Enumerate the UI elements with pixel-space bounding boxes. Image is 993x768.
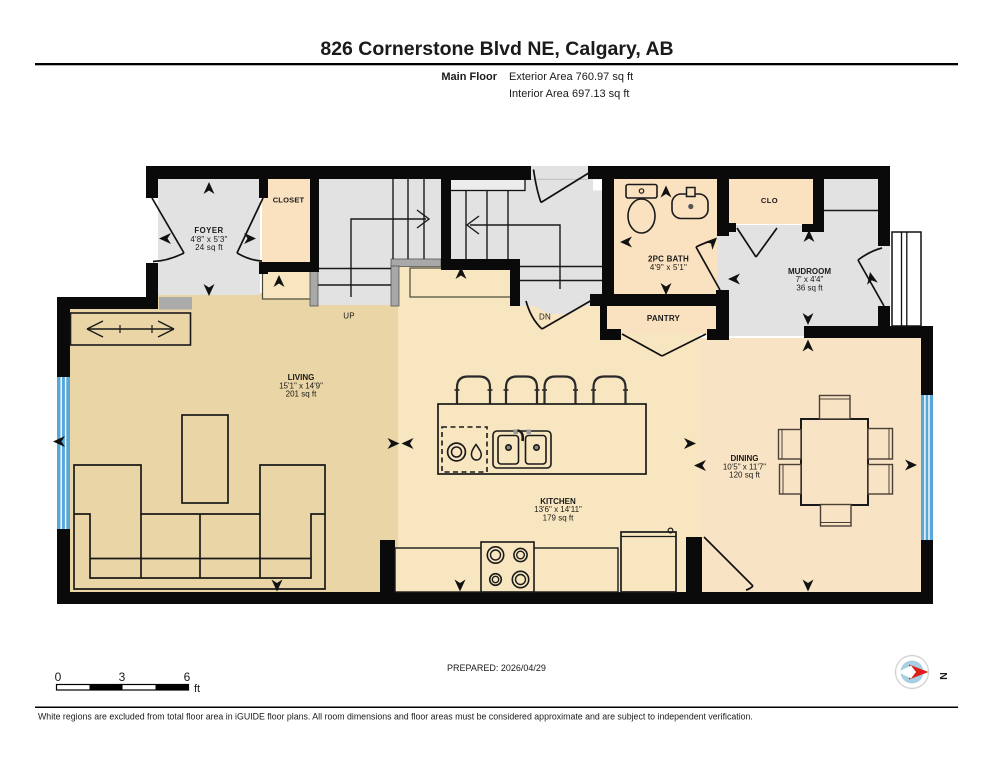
svg-text:FOYER: FOYER: [194, 226, 223, 235]
svg-text:6: 6: [184, 670, 191, 684]
svg-text:120 sq ft: 120 sq ft: [729, 471, 760, 480]
svg-text:UP: UP: [343, 312, 355, 321]
svg-text:36 sq ft: 36 sq ft: [796, 283, 823, 292]
svg-text:826 Cornerstone Blvd NE, Calga: 826 Cornerstone Blvd NE, Calgary, AB: [320, 38, 673, 60]
svg-text:PANTRY: PANTRY: [647, 314, 681, 323]
svg-text:N: N: [937, 672, 949, 680]
svg-text:ft: ft: [194, 683, 200, 695]
svg-text:3: 3: [119, 670, 126, 684]
svg-text:Interior Area 697.13 sq ft: Interior Area 697.13 sq ft: [509, 88, 629, 100]
svg-text:24 sq ft: 24 sq ft: [195, 243, 223, 252]
svg-text:CLOSET: CLOSET: [273, 196, 305, 205]
svg-text:201 sq ft: 201 sq ft: [286, 390, 317, 399]
svg-text:DN: DN: [539, 313, 551, 322]
svg-text:179 sq ft: 179 sq ft: [543, 513, 574, 522]
svg-text:0: 0: [55, 670, 62, 684]
svg-text:4'9" x 5'1": 4'9" x 5'1": [650, 263, 687, 272]
svg-text:Main Floor: Main Floor: [441, 71, 497, 83]
svg-text:CLO: CLO: [761, 196, 778, 205]
svg-text:Exterior Area 760.97 sq ft: Exterior Area 760.97 sq ft: [509, 71, 633, 83]
svg-text:PREPARED: 2026/04/29: PREPARED: 2026/04/29: [447, 663, 546, 673]
svg-text:White regions are excluded fro: White regions are excluded from total fl…: [38, 712, 753, 722]
